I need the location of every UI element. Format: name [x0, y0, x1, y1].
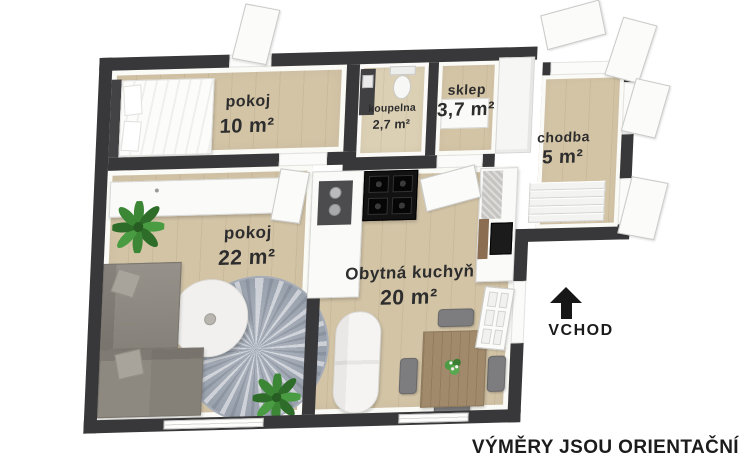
storage-band-wall	[482, 154, 495, 167]
dining-chair	[437, 308, 474, 327]
arrow-up-icon	[550, 287, 582, 303]
floor-plan: pokoj 10 m² koupelna 2,7 m² sklep 3,7 m²…	[83, 38, 645, 438]
hallway-bottom-wall	[527, 226, 630, 242]
oven	[490, 222, 513, 255]
dining-chair	[487, 355, 507, 392]
entrance-label: VCHOD	[536, 322, 626, 340]
stove-burner	[367, 197, 388, 215]
storage-label: sklep 3,7 m²	[426, 79, 506, 124]
bedroom-label: pokoj 10 m²	[174, 90, 321, 141]
floor-plan-page: { "rooms": [ { "id": "bedroom", "name": …	[0, 0, 745, 468]
disclaimer-text: VÝMĚRY JSOU ORIENTAČNÍ	[472, 437, 739, 459]
dining-chair	[399, 358, 419, 395]
room-area: 3,7 m²	[426, 98, 505, 125]
wardrobe-knob	[155, 189, 159, 193]
stove-burner	[368, 175, 389, 193]
kitchen-sofa	[332, 311, 382, 414]
room-area: 5 m²	[522, 145, 603, 172]
kitchen-sink	[317, 180, 353, 225]
window	[398, 412, 468, 423]
room-area: 20 m²	[312, 282, 505, 314]
bathroom-sink	[362, 75, 374, 88]
counter-top	[481, 170, 503, 219]
hallway-label: chodba 5 m²	[522, 127, 604, 172]
toilet-tank	[390, 66, 416, 76]
stove	[362, 170, 418, 221]
bathroom-label: koupelna 2,7 m²	[352, 101, 431, 133]
room-area: 10 m²	[174, 111, 320, 141]
room-area: 2,7 m²	[352, 115, 431, 133]
bed-pillow	[123, 84, 142, 116]
kitchen-right-wall-b	[507, 343, 523, 422]
storage-doorway	[436, 154, 483, 168]
sink-basin	[329, 187, 342, 199]
flowers-icon	[441, 355, 466, 380]
living-room-label: pokoj 22 m²	[166, 220, 328, 274]
vase	[204, 313, 217, 325]
kitchen-label: Obytná kuchyň 20 m²	[312, 259, 506, 313]
bed-pillow	[121, 121, 142, 152]
hallway-top-door-left	[540, 0, 606, 50]
stove-burner	[391, 196, 412, 214]
stair-step	[528, 213, 604, 223]
room-area: 22 m²	[166, 242, 327, 274]
room-name: sklep	[427, 79, 506, 99]
hallway-stairs	[528, 181, 606, 229]
hallway-right-wall-b	[620, 134, 634, 178]
room-name: chodba	[523, 127, 604, 147]
sink-basin	[328, 204, 341, 216]
bathroom-band-wall	[342, 155, 437, 170]
hallway-top-door-right	[604, 17, 657, 84]
wood-cabinet	[477, 219, 489, 259]
bedroom-doorway	[279, 152, 328, 166]
plant-icon	[111, 200, 165, 253]
kitchen-right-wall-a	[513, 229, 528, 281]
arrow-up-icon-stem	[561, 302, 572, 319]
stove-burner	[392, 175, 413, 193]
sofa-chaise	[97, 347, 204, 418]
